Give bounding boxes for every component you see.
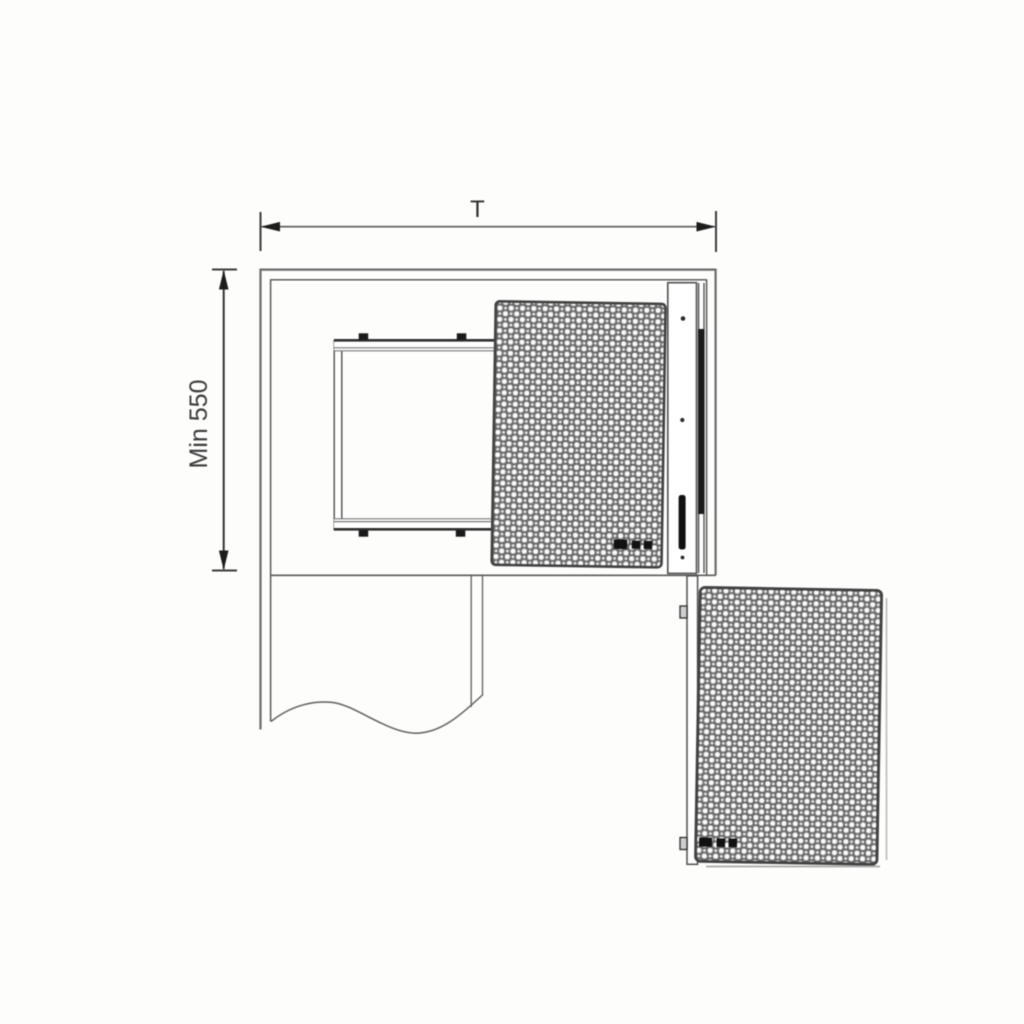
svg-text:T: T [470,196,485,223]
svg-text:Min 550: Min 550 [185,380,213,469]
